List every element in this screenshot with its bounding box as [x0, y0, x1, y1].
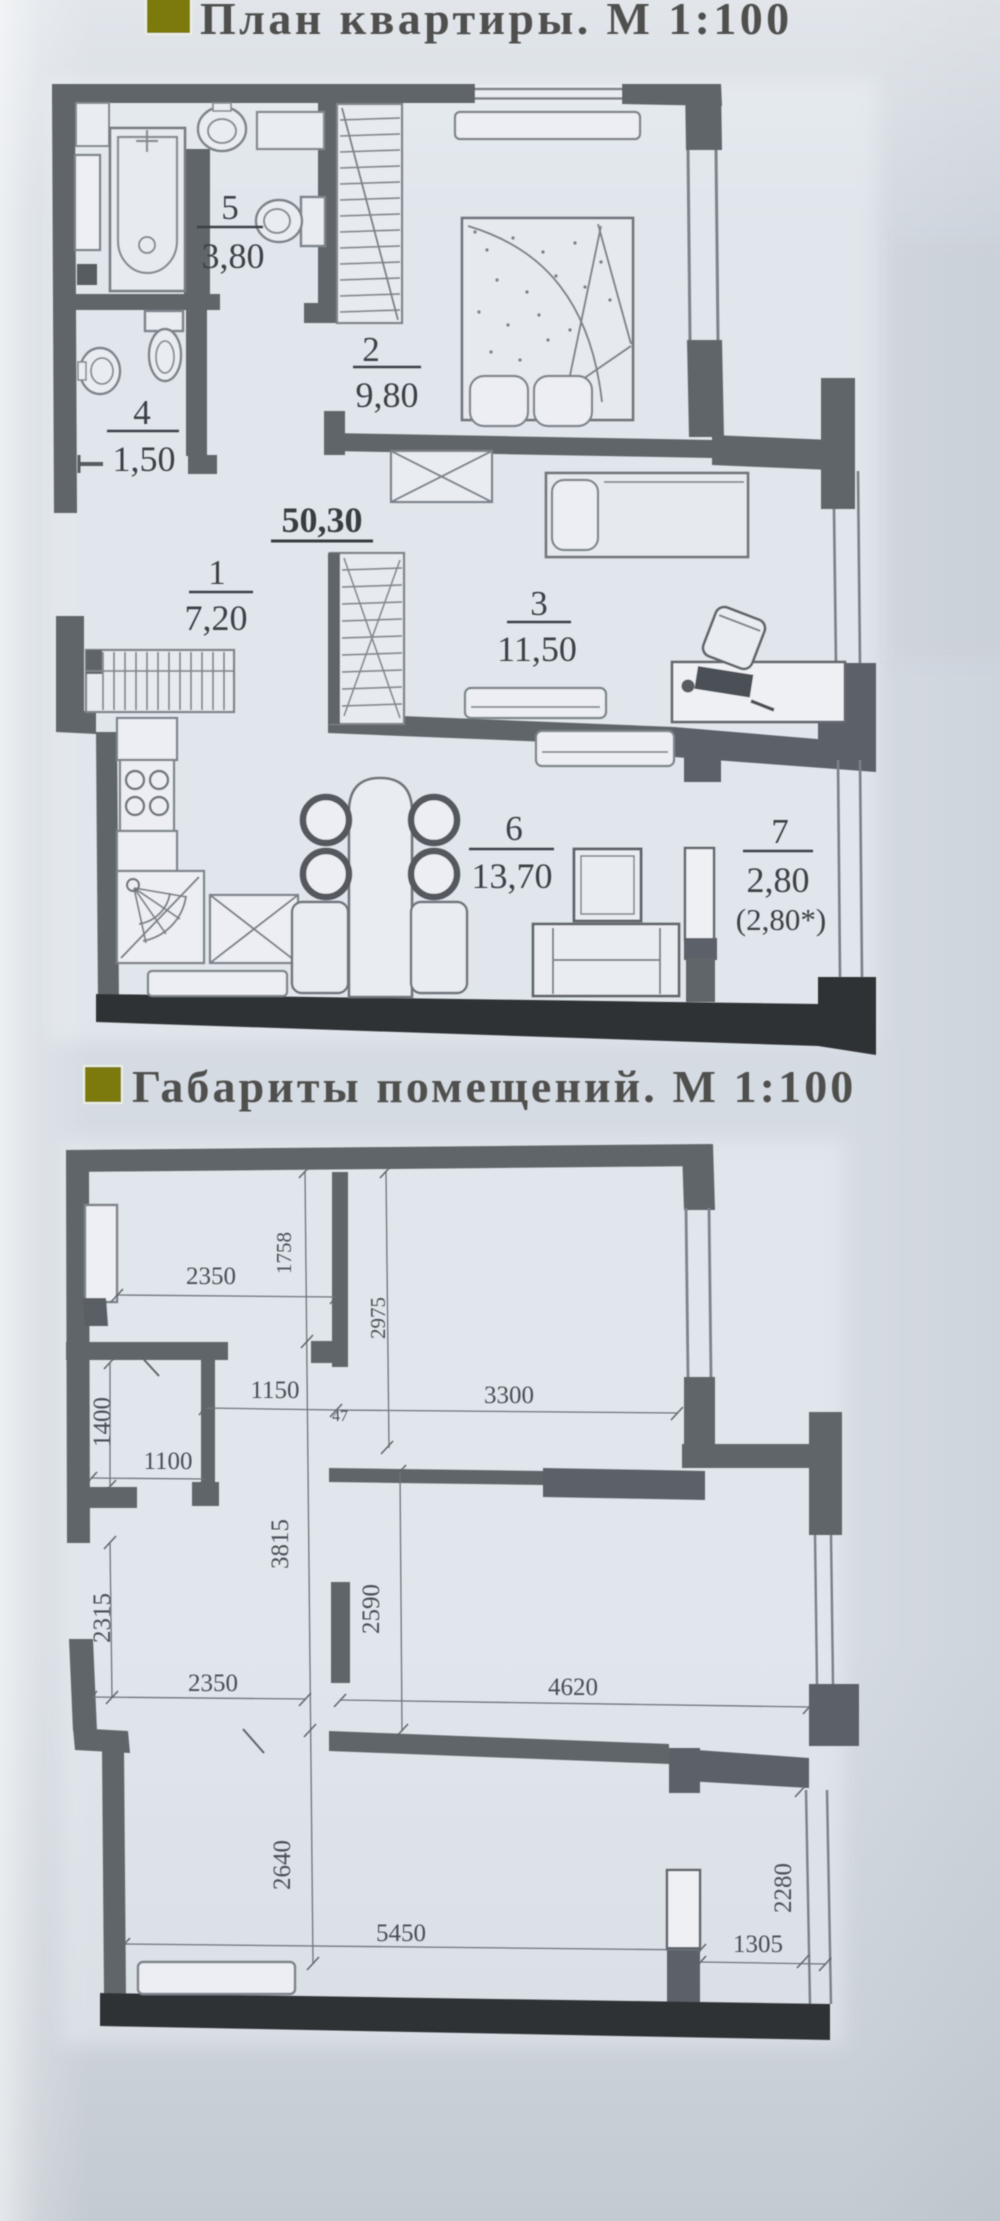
svg-text:4620: 4620	[548, 1674, 598, 1701]
svg-text:1305: 1305	[733, 1931, 783, 1958]
svg-text:2350: 2350	[186, 1263, 236, 1290]
svg-text:3815: 3815	[267, 1519, 294, 1569]
svg-text:(2,80*): (2,80*)	[736, 902, 826, 937]
svg-text:1400: 1400	[89, 1397, 116, 1447]
svg-text:4: 4	[133, 393, 151, 432]
svg-text:47: 47	[332, 1408, 348, 1425]
svg-text:1,50: 1,50	[113, 439, 176, 479]
svg-text:11,50: 11,50	[497, 629, 577, 669]
svg-text:План квартиры. М 1:100: План квартиры. М 1:100	[200, 0, 793, 44]
svg-text:5450: 5450	[376, 1920, 426, 1947]
svg-text:2: 2	[362, 330, 380, 369]
svg-text:Габариты помещений. М 1:100: Габариты помещений. М 1:100	[132, 1061, 856, 1112]
svg-text:1100: 1100	[143, 1448, 192, 1475]
svg-text:3300: 3300	[484, 1382, 534, 1409]
svg-text:6: 6	[505, 809, 523, 848]
svg-text:2280: 2280	[770, 1863, 797, 1913]
svg-text:2315: 2315	[89, 1593, 116, 1643]
svg-text:1: 1	[208, 553, 226, 592]
svg-text:3: 3	[530, 584, 548, 623]
svg-text:2590: 2590	[358, 1584, 385, 1634]
svg-text:2640: 2640	[269, 1840, 296, 1890]
svg-text:3,80: 3,80	[202, 236, 265, 276]
svg-text:50,30: 50,30	[282, 500, 363, 540]
svg-text:1150: 1150	[250, 1377, 299, 1404]
svg-text:7: 7	[771, 812, 789, 851]
svg-text:2350: 2350	[188, 1670, 238, 1697]
svg-text:5: 5	[221, 188, 239, 227]
svg-text:13,70: 13,70	[472, 856, 553, 896]
svg-text:7,20: 7,20	[185, 598, 248, 638]
svg-text:2975: 2975	[366, 1297, 390, 1339]
svg-text:9,80: 9,80	[356, 375, 419, 415]
svg-text:1758: 1758	[272, 1232, 296, 1274]
svg-text:2,80: 2,80	[747, 860, 810, 900]
